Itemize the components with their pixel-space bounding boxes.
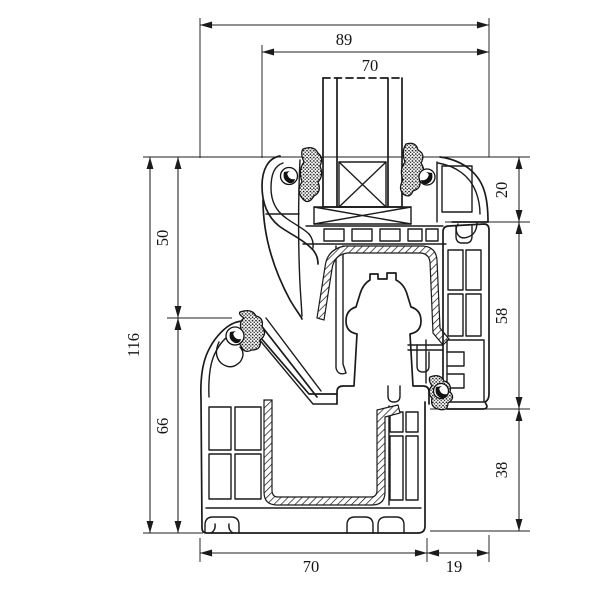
glazing-spacer: [339, 162, 386, 207]
dim-left-lower-label: 66: [153, 418, 172, 435]
dim-right-upper-label: 20: [492, 182, 511, 199]
profile-drawing: 89 70 116 50 66 20 58 38 70 19: [0, 0, 600, 600]
glass-unit: [314, 78, 411, 224]
drawing-canvas: 89 70 116 50 66 20 58 38 70 19: [0, 0, 600, 600]
frame-profile: [201, 224, 489, 533]
dim-right-middle-label: 58: [492, 308, 511, 325]
gasket-frame-right: [429, 376, 453, 410]
dimension-labels: 89 70 116 50 66 20 58 38 70 19: [124, 30, 511, 576]
dim-bottom-extension-label: 19: [446, 557, 463, 576]
sash-profile: [260, 156, 488, 397]
steel-reinforcement-sash: [317, 246, 449, 345]
gasket-glass-left: [281, 148, 322, 202]
dim-left-total-label: 116: [124, 333, 143, 357]
dim-top-glazing-label: 70: [362, 56, 379, 75]
gasket-glass-right: [401, 143, 436, 196]
dim-bottom-frame-label: 70: [303, 557, 320, 576]
gasket-frame-left: [226, 311, 265, 352]
dim-left-upper-label: 50: [153, 230, 172, 247]
steel-reinforcement-frame: [264, 400, 400, 505]
setting-block: [314, 207, 411, 224]
dim-top-overall-label: 89: [336, 30, 353, 49]
dim-right-lower-label: 38: [492, 462, 511, 479]
